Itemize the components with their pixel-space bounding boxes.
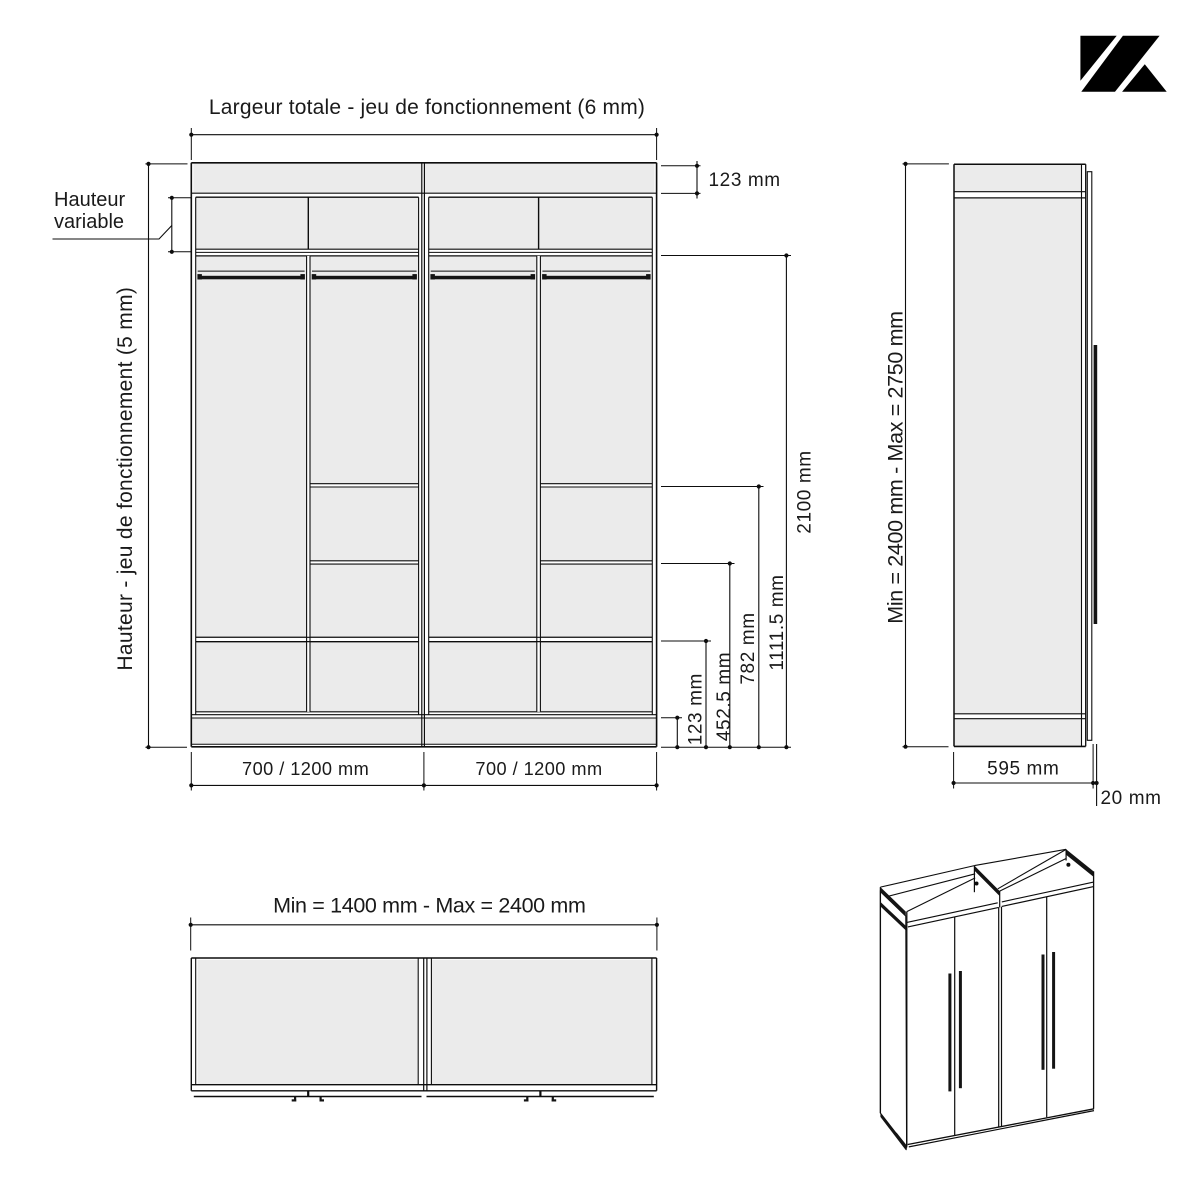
svg-text:2100 mm: 2100 mm [794,450,815,533]
svg-text:452.5 mm: 452.5 mm [714,652,735,741]
svg-text:595 mm: 595 mm [987,759,1059,780]
svg-text:1111.5 mm: 1111.5 mm [767,574,788,670]
svg-text:700 / 1200 mm: 700 / 1200 mm [475,759,602,779]
svg-text:Largeur totale - jeu de foncti: Largeur totale - jeu de fonctionnement (… [209,96,645,119]
svg-text:123 mm: 123 mm [685,673,706,745]
svg-text:20 mm: 20 mm [1101,788,1162,809]
svg-text:Hauteur: Hauteur [54,189,125,211]
svg-text:782 mm: 782 mm [738,612,759,684]
svg-text:123 mm: 123 mm [709,170,781,191]
svg-text:Min = 1400 mm - Max = 2400 mm: Min = 1400 mm - Max = 2400 mm [273,893,585,917]
svg-text:Min = 2400 mm - Max = 2750 mm: Min = 2400 mm - Max = 2750 mm [883,311,907,623]
svg-text:Hauteur - jeu de fonctionnemen: Hauteur - jeu de fonctionnement (5 mm) [114,287,137,671]
svg-text:variable: variable [54,211,124,233]
svg-text:700 / 1200 mm: 700 / 1200 mm [242,759,369,779]
